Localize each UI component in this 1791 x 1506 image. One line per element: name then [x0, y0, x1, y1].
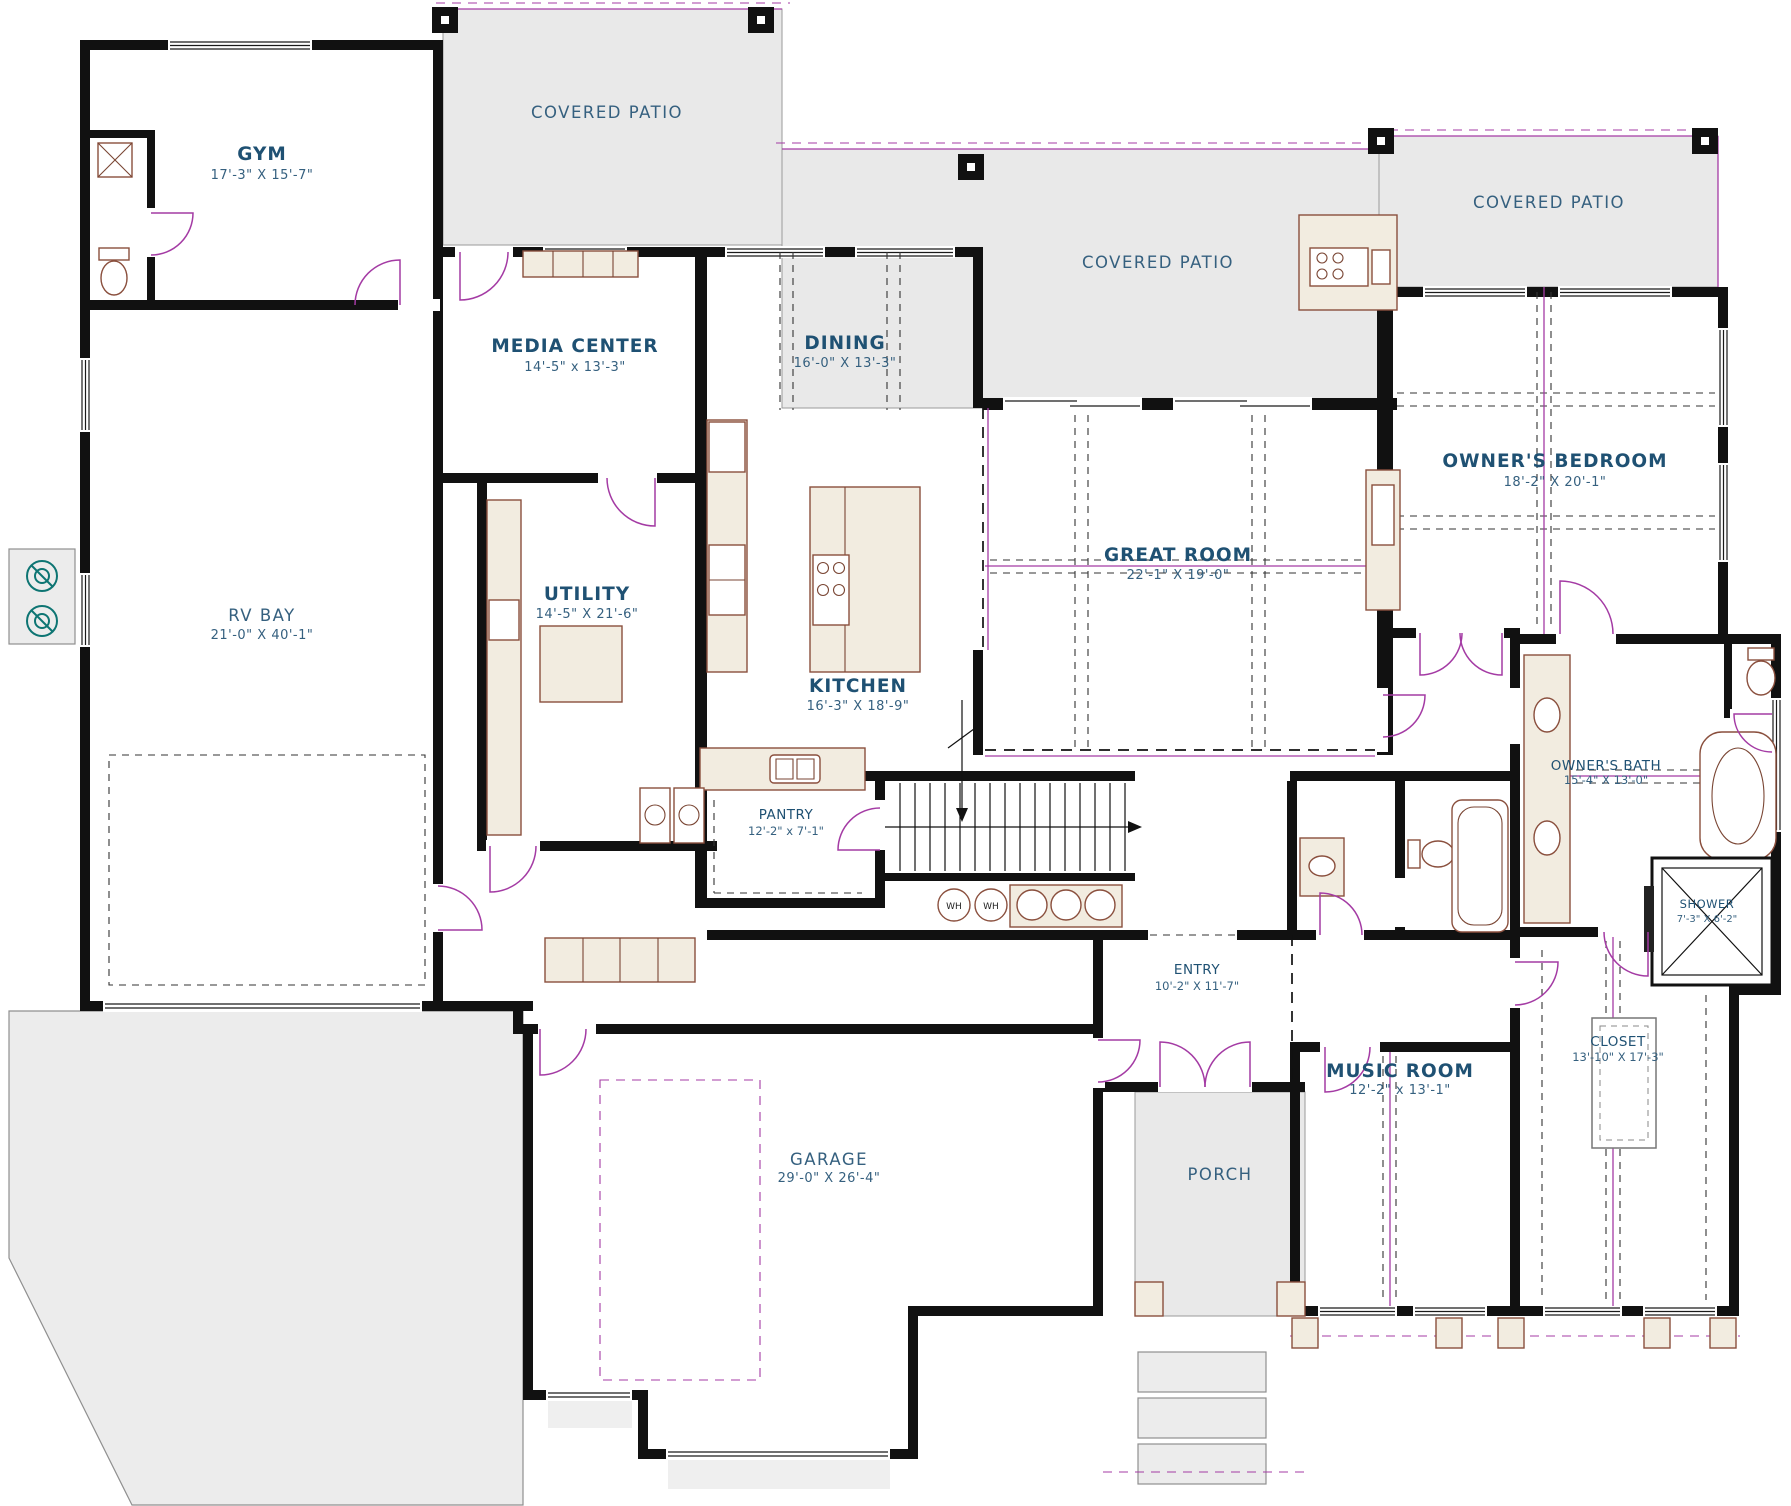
- door-arc: [607, 478, 655, 526]
- door-arc: [540, 1029, 586, 1075]
- room-label-music-room: MUSIC ROOM: [1326, 1061, 1474, 1082]
- floor-plan-drawing: GYM 17'-3" X 15'-7" COVERED PATIO COVERE…: [0, 0, 1791, 1506]
- patio-label-right: COVERED PATIO: [1473, 193, 1625, 212]
- bathtub-icon: [1452, 800, 1508, 932]
- patio-label-top: COVERED PATIO: [531, 103, 683, 122]
- room-label-media-center: MEDIA CENTER: [491, 336, 658, 357]
- toilet-tank-icon: [1748, 648, 1774, 660]
- room-label-owners-bath: OWNER'S BATH: [1551, 758, 1661, 774]
- room-label-garage: GARAGE: [790, 1150, 868, 1169]
- door-arc: [838, 808, 880, 850]
- driveway: [9, 1011, 523, 1505]
- door-arc: [1560, 581, 1613, 634]
- column-icon: [958, 154, 984, 180]
- room-dims-garage: 29'-0" X 26'-4": [778, 1171, 881, 1186]
- column-icon: [748, 7, 774, 33]
- room-label-utility: UTILITY: [544, 584, 630, 605]
- pilaster: [1292, 1318, 1318, 1348]
- toilet-tank-icon: [99, 248, 129, 260]
- pilaster: [1436, 1318, 1462, 1348]
- sink-icon: [1534, 698, 1560, 732]
- door-arc: [460, 252, 508, 300]
- room-label-closet: CLOSET: [1590, 1034, 1646, 1050]
- sink-icon: [1534, 821, 1560, 855]
- room-label-kitchen: KITCHEN: [809, 676, 907, 697]
- refrigerator-icon: [709, 422, 745, 472]
- utility-island: [540, 626, 622, 702]
- utility-counter: [487, 500, 521, 835]
- room-label-porch: PORCH: [1187, 1165, 1252, 1184]
- door-arc: [151, 213, 193, 255]
- door-arc: [1515, 962, 1558, 1005]
- garage-apron-main: [668, 1459, 890, 1489]
- door-arc: [1460, 633, 1502, 675]
- door-arc: [1420, 633, 1462, 675]
- room-label-gym: GYM: [237, 144, 287, 165]
- pilaster: [1498, 1318, 1524, 1348]
- door-arc: [490, 846, 536, 892]
- porch-post: [1277, 1282, 1305, 1316]
- tank-icon: [1051, 890, 1081, 920]
- equipment-pad: [9, 549, 75, 644]
- room-dims-entry: 10'-2" X 11'-7": [1155, 979, 1239, 993]
- room-dims-shower: 7'-3" X 6'-2": [1677, 914, 1738, 925]
- sink-icon: [1309, 856, 1335, 876]
- room-dims-owners-bath: 15'-4" X 13'-0": [1564, 773, 1648, 787]
- patio-label-middle: COVERED PATIO: [1082, 253, 1234, 272]
- room-dims-rv-bay: 21'-0" X 40'-1": [211, 628, 314, 643]
- room-dims-media-center: 14'-5" x 13'-3": [524, 360, 626, 375]
- door-arc: [355, 260, 400, 305]
- staircase: [885, 700, 1142, 871]
- room-label-shower: SHOWER: [1680, 897, 1735, 911]
- vanity-counter: [1524, 655, 1570, 923]
- shower-door: [1644, 886, 1654, 952]
- room-label-owners-bedroom: OWNER'S BEDROOM: [1442, 451, 1667, 472]
- room-dims-kitchen: 16'-3" X 18'-9": [807, 699, 910, 714]
- room-dims-great-room: 22'-1" X 19'-0": [1127, 568, 1230, 583]
- column-icon: [1368, 128, 1394, 154]
- room-dims-music-room: 12'-2" x 13'-1": [1349, 1083, 1451, 1098]
- column-icon: [432, 7, 458, 33]
- toilet-icon: [101, 261, 127, 295]
- porch-step-2: [1138, 1398, 1266, 1438]
- room-label-dining: DINING: [804, 333, 885, 354]
- door-arc: [1604, 932, 1648, 976]
- garage-apron-left: [548, 1400, 632, 1428]
- porch-post: [1135, 1282, 1163, 1316]
- water-heater-label: WH: [946, 902, 962, 912]
- room-dims-owners-bedroom: 18'-2" X 20'-1": [1504, 475, 1607, 490]
- room-label-rv-bay: RV BAY: [228, 606, 296, 625]
- covered-patio-top: [443, 9, 782, 245]
- porch-step-3: [1138, 1444, 1266, 1484]
- room-label-pantry: PANTRY: [759, 807, 814, 823]
- room-label-entry: ENTRY: [1174, 962, 1220, 978]
- media-console: [523, 251, 638, 277]
- room-dims-pantry: 12'-2" x 7'-1": [748, 824, 824, 838]
- floor-plan: GYM 17'-3" X 15'-7" COVERED PATIO COVERE…: [0, 0, 1791, 1506]
- room-dims-utility: 14'-5" X 21'-6": [536, 607, 639, 622]
- toilet-tank-icon: [1408, 840, 1420, 868]
- tank-icon: [1085, 890, 1115, 920]
- site-hardscape: [9, 3, 1740, 1505]
- door-arc: [438, 886, 482, 930]
- room-dims-gym: 17'-3" X 15'-7": [211, 168, 314, 183]
- utility-sink-icon: [489, 600, 519, 640]
- toilet-icon: [1747, 661, 1775, 695]
- porch-step-1: [1138, 1352, 1266, 1392]
- water-heater-label: WH: [983, 902, 999, 912]
- room-dims-closet: 13'-10" X 17'-3": [1572, 1050, 1664, 1064]
- room-dims-dining: 16'-0" X 13'-3": [794, 356, 897, 371]
- door-arc: [1320, 893, 1362, 935]
- column-icon: [1692, 128, 1718, 154]
- toilet-icon: [1422, 841, 1454, 867]
- pilaster: [1644, 1318, 1670, 1348]
- room-label-great-room: GREAT ROOM: [1104, 545, 1252, 566]
- tank-icon: [1017, 890, 1047, 920]
- pilaster: [1710, 1318, 1736, 1348]
